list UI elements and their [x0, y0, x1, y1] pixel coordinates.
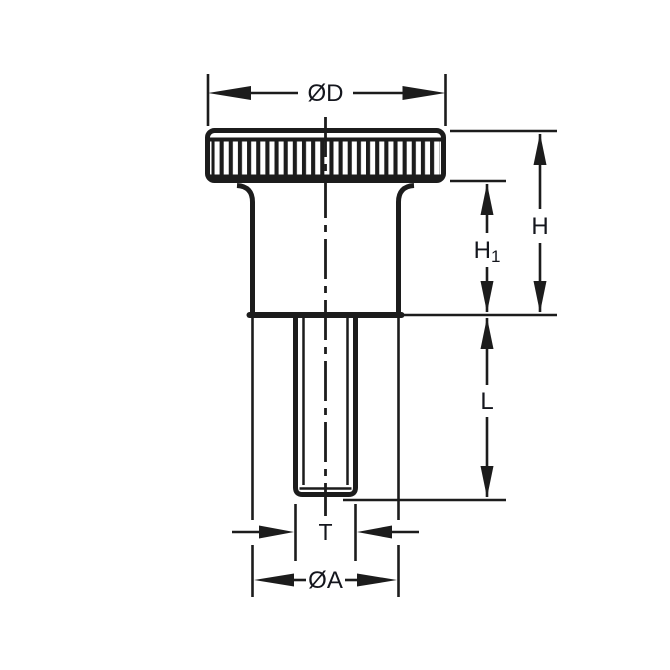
label-head-height-sub: 1 [491, 247, 500, 266]
arrowhead-left-icon [208, 86, 251, 100]
hub-right-wall [399, 186, 415, 313]
arrowhead-right-icon [357, 574, 397, 587]
label-overall-height: H [531, 213, 548, 240]
label-head-height: H1 [474, 237, 501, 266]
arrowhead-left-icon [254, 574, 294, 587]
hub-left-wall [237, 186, 253, 313]
label-thread-length: L [480, 388, 493, 415]
label-top-diameter: ØD [308, 80, 344, 107]
dimension-thread-length: L [343, 318, 506, 501]
part-outline [208, 117, 444, 516]
label-thread-diameter: T [318, 519, 332, 545]
drawing-svg: ØD H H1 L T [0, 0, 670, 670]
label-head-height-main: H [474, 237, 491, 264]
arrowhead-right-icon [403, 86, 446, 100]
technical-drawing-page: ØD H H1 L T [0, 0, 670, 670]
arrowhead-right-icon [259, 526, 294, 539]
dimension-head-height: H1 [450, 181, 506, 313]
label-boss-diameter: ØA [308, 567, 343, 594]
arrowhead-left-icon [357, 526, 392, 539]
